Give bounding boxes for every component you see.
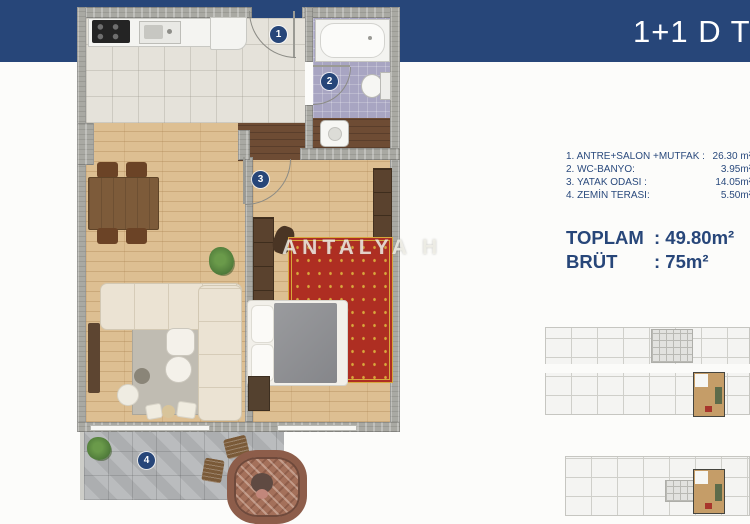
total-row: BRÜT : 75m² (566, 250, 734, 274)
firepit-ember (256, 489, 268, 499)
legend-row: 3. YATAK ODASI : 14.05m² (566, 176, 750, 189)
dining-chair (126, 228, 147, 244)
fridge (210, 17, 247, 50)
bedroom-bench (248, 376, 270, 411)
coffee-table-round (165, 356, 192, 383)
dining-table (88, 177, 159, 230)
legend-label: 4. ZEMİN TERASI: (566, 189, 650, 202)
total-value: : 75m² (654, 250, 709, 274)
legend-row: 1. ANTRE+SALON +MUTFAK : 26.30 m² (566, 150, 750, 163)
toilet-tank (380, 72, 391, 100)
floor-pillow (145, 403, 163, 421)
wall-left (77, 7, 86, 432)
bedroom-window (277, 425, 357, 431)
pouf (162, 405, 175, 418)
bathroom-sink (320, 120, 349, 147)
legend-value: 26.30 m² (713, 150, 750, 163)
watermark: ANTALYA H (282, 236, 442, 260)
keyplan-unit-red (705, 406, 712, 412)
bed (247, 300, 348, 386)
area-totals: TOPLAM : 49.80m² BRÜT : 75m² (566, 226, 734, 274)
pouf (134, 368, 150, 384)
wall-top-right (302, 7, 400, 18)
total-value: : 49.80m² (654, 226, 734, 250)
flyer-page: { "header": { "title": "1+1 D T" }, "leg… (0, 0, 750, 500)
sink-basin (144, 25, 163, 39)
faucet (167, 29, 172, 34)
legend-value: 5.50m² (721, 189, 750, 202)
keyplan-strip-lower (565, 456, 750, 516)
room-marker-3: 3 (252, 171, 269, 188)
wall-bedroom-top (300, 148, 400, 160)
barbecue-firepit (227, 450, 307, 524)
keyplan-unit-room (695, 471, 708, 484)
stove (92, 20, 130, 43)
wall-left-column (77, 123, 94, 165)
bed-blanket (274, 303, 337, 383)
legend-value: 14.05m² (715, 176, 750, 189)
total-row: TOPLAM : 49.80m² (566, 226, 734, 250)
bathtub-basin (320, 23, 385, 58)
legend-row: 2. WC-BANYO: 3.95m² (566, 163, 750, 176)
unit-type-title: 1+1 D T (633, 14, 750, 50)
total-label: BRÜT (566, 250, 654, 274)
dining-chair (126, 162, 147, 178)
wall-bathroom-lower (305, 105, 313, 151)
legend-label: 3. YATAK ODASI : (566, 176, 647, 189)
bathtub (315, 19, 390, 62)
legend-label: 1. ANTRE+SALON +MUTFAK : (566, 150, 705, 163)
keyplan-highlight-unit (693, 469, 725, 514)
pouf (117, 384, 139, 406)
living-window (90, 425, 210, 431)
legend-value: 3.95m² (721, 163, 750, 176)
keyplan-highlight-unit (693, 372, 725, 417)
terrace-plant (87, 437, 111, 460)
kitchen-sink (139, 21, 181, 44)
room-marker-1: 1 (270, 26, 287, 43)
dining-chair (97, 162, 118, 178)
room-marker-4: 4 (138, 452, 155, 469)
bathroom-sink-basin (328, 127, 342, 141)
tv-console (88, 323, 100, 393)
wall-door-stub (238, 130, 250, 160)
wall-bathroom-upper (305, 7, 313, 62)
legend-row: 4. ZEMİN TERASI: 5.50m² (566, 189, 750, 202)
room-legend: 1. ANTRE+SALON +MUTFAK : 26.30 m² 2. WC-… (566, 150, 750, 202)
keyplan-unit-red (705, 503, 712, 509)
sofa-section-right (198, 285, 242, 421)
bathtub-drain (368, 36, 372, 40)
keyplan-unit-green (715, 387, 722, 404)
total-label: TOPLAM (566, 226, 654, 250)
coffee-table (166, 328, 195, 356)
legend-label: 2. WC-BANYO: (566, 163, 635, 176)
keyplan-unit-green (715, 484, 722, 501)
room-marker-2: 2 (321, 73, 338, 90)
terrace-chair (201, 457, 225, 483)
floor-pillow (176, 401, 197, 419)
keyplan-elevator-core (651, 329, 693, 363)
bed-pillow (251, 305, 274, 343)
keyplan-unit-room (695, 374, 708, 387)
living-plant (209, 247, 234, 275)
keyplan-strip-upper (545, 327, 750, 415)
dining-chair (97, 228, 118, 244)
